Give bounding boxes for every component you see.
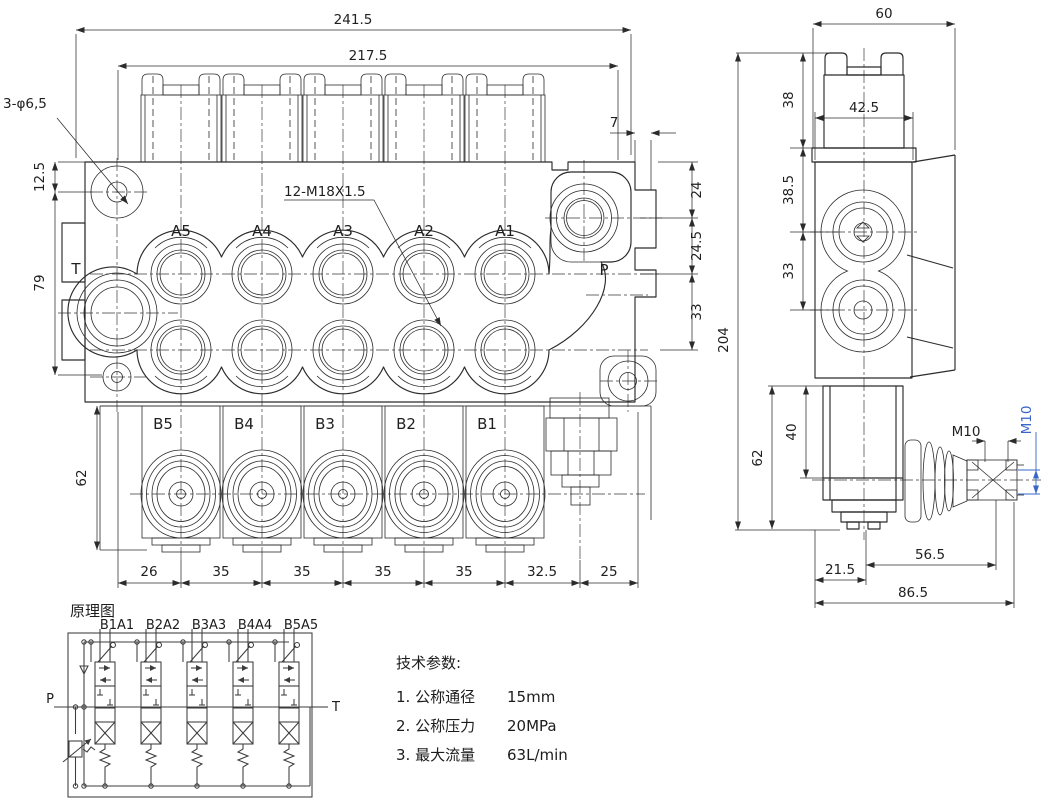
schematic-lines	[54, 629, 328, 797]
chain-25: 25	[600, 564, 617, 580]
relief-valve	[546, 398, 617, 505]
tech-item-1-label: 1. 公称通径	[396, 688, 475, 706]
chain-35b: 35	[293, 564, 310, 580]
label-b5a5: B5A5	[284, 618, 318, 633]
dim-right-245: 24.5	[689, 231, 705, 261]
port-b5: B5	[153, 415, 173, 433]
front-texts: 241.5 217.5 3-φ6,5 12.5 79 12-M18X1.5 7 …	[3, 12, 705, 580]
p-port	[550, 172, 631, 262]
dim-side-204: 204	[716, 327, 732, 353]
front-view: 241.5 217.5 3-φ6,5 12.5 79 12-M18X1.5 7 …	[3, 12, 705, 588]
side-thread-dim	[1018, 432, 1040, 494]
dim-cap-span: 217.5	[349, 48, 388, 64]
thread-m10-vertical: M10	[1019, 406, 1035, 435]
port-b2: B2	[396, 415, 416, 433]
port-a5: A5	[171, 222, 191, 240]
port-b1: B1	[477, 415, 497, 433]
hole-callout: 3-φ6,5	[3, 96, 47, 112]
side-ports	[821, 190, 905, 352]
thread-callout: 12-M18X1.5	[284, 184, 366, 200]
tech-item-2-label: 2. 公称压力	[396, 717, 475, 735]
side-blue-text: M10	[1019, 406, 1035, 435]
schematic-port-p: P	[46, 692, 54, 707]
schematic-port-t: T	[331, 700, 340, 715]
tech-item-1-value: 15mm	[507, 688, 555, 706]
dim-hole-offset: 12.5	[32, 162, 48, 192]
dim-right-24: 24	[689, 181, 705, 198]
dim-side-385: 38.5	[781, 175, 797, 205]
port-a3: A3	[333, 222, 353, 240]
dim-side-38: 38	[781, 91, 797, 108]
dim-side-62: 62	[750, 449, 766, 466]
dim-side-865: 86.5	[898, 585, 928, 601]
dim-side-425: 42.5	[849, 100, 879, 116]
lever-assembly	[905, 440, 1024, 522]
b-sections	[100, 406, 651, 552]
tech-item-3-label: 3. 最大流量	[396, 746, 475, 764]
chain-26: 26	[140, 564, 157, 580]
side-view: 60 38 42.5 38.5 33 204 40 62 M10 56.5 21…	[716, 6, 1041, 608]
thread-m10-horizontal: M10	[952, 424, 981, 440]
dim-notch: 7	[610, 115, 619, 131]
port-p: P	[599, 261, 608, 279]
port-b3: B3	[315, 415, 335, 433]
dim-side-width: 60	[875, 6, 892, 22]
dim-overall-width: 241.5	[334, 12, 373, 28]
tech-params: 技术参数: 1. 公称通径 15mm 2. 公称压力 20MPa 3. 最大流量…	[396, 654, 568, 764]
port-a2: A2	[414, 222, 434, 240]
port-b4: B4	[234, 415, 254, 433]
chain-35d: 35	[455, 564, 472, 580]
dim-side-215: 21.5	[825, 562, 855, 578]
dim-lower-height: 62	[74, 469, 90, 486]
dim-side-33: 33	[781, 262, 797, 279]
dim-hole-spacing: 79	[32, 274, 48, 291]
label-b3a3: B3A3	[192, 618, 226, 633]
port-a1: A1	[495, 222, 515, 240]
dim-side-40: 40	[784, 423, 800, 440]
port-t: T	[70, 260, 81, 278]
chain-325: 32.5	[527, 564, 557, 580]
chain-35c: 35	[374, 564, 391, 580]
label-b2a2: B2A2	[146, 618, 180, 633]
tech-item-3-value: 63L/min	[507, 746, 568, 764]
engineering-drawing: 241.5 217.5 3-φ6,5 12.5 79 12-M18X1.5 7 …	[0, 0, 1041, 807]
dim-right-33: 33	[689, 303, 705, 320]
dim-side-565: 56.5	[915, 547, 945, 563]
label-b4a4: B4A4	[238, 618, 272, 633]
port-a4: A4	[252, 222, 272, 240]
tech-item-2-value: 20MPa	[507, 717, 557, 735]
tech-title: 技术参数:	[396, 654, 461, 672]
hydraulic-schematic: 原理图 B1A1 B2A2 B3A3 B4A4 B5A5 P T	[46, 602, 340, 797]
label-b1a1: B1A1	[100, 618, 134, 633]
chain-35a: 35	[212, 564, 229, 580]
